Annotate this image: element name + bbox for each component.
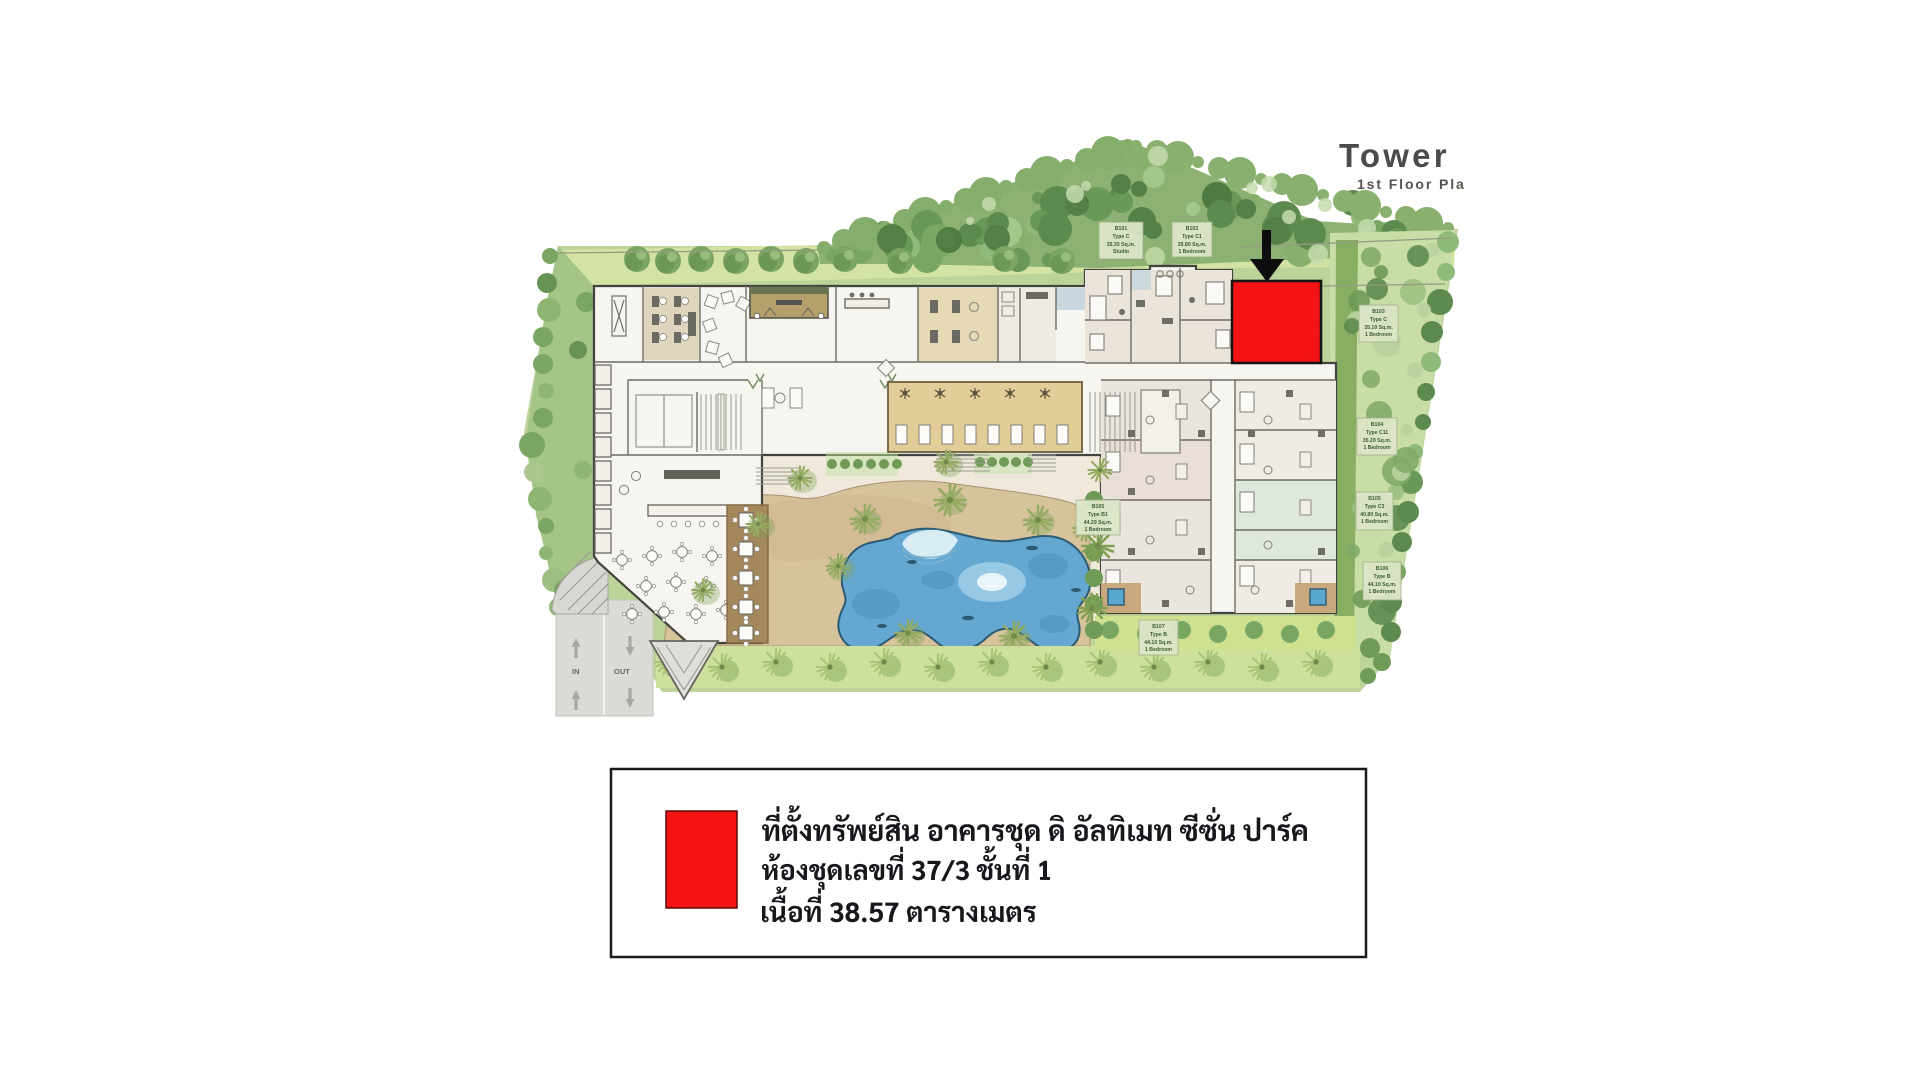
svg-text:44.10 Sq.m.: 44.10 Sq.m. [1368,582,1397,588]
svg-text:B105: B105 [1368,496,1381,502]
svg-text:44.10 Sq.m.: 44.10 Sq.m. [1144,640,1173,646]
svg-text:Type C11: Type C11 [1366,430,1389,436]
svg-text:Type C: Type C [1370,317,1387,323]
svg-text:B101: B101 [1115,226,1128,232]
svg-text:35.35 Sq.m.: 35.35 Sq.m. [1107,242,1136,248]
svg-text:B107: B107 [1152,624,1165,630]
svg-text:1 Bedroom: 1 Bedroom [1145,647,1172,653]
svg-text:IN: IN [572,667,580,676]
svg-text:1st Floor Pla: 1st Floor Pla [1357,176,1466,192]
svg-text:B103: B103 [1372,309,1385,315]
svg-text:44.29 Sq.m.: 44.29 Sq.m. [1084,520,1113,526]
svg-text:Type B1: Type B1 [1088,512,1108,518]
svg-text:B102: B102 [1186,226,1199,232]
svg-text:1 Bedroom: 1 Bedroom [1365,332,1392,338]
svg-text:40.80 Sq.m.: 40.80 Sq.m. [1360,512,1389,518]
svg-text:B105: B105 [1092,504,1105,510]
svg-text:Type C: Type C [1113,234,1130,240]
svg-text:Type B: Type B [1374,574,1391,580]
svg-text:1 Bedroom: 1 Bedroom [1178,249,1205,255]
svg-text:1 Bedroom: 1 Bedroom [1368,589,1395,595]
svg-text:35.10 Sq.m.: 35.10 Sq.m. [1364,325,1393,331]
svg-text:Tower: Tower [1339,137,1450,174]
svg-text:Type C1: Type C1 [1182,234,1202,240]
svg-text:1 Bedroom: 1 Bedroom [1361,519,1388,525]
svg-text:Type B: Type B [1150,632,1167,638]
svg-text:Studio: Studio [1113,249,1129,255]
svg-text:1 Bedroom: 1 Bedroom [1084,527,1111,533]
svg-text:B106: B106 [1376,566,1389,572]
svg-text:35.20 Sq.m.: 35.20 Sq.m. [1363,438,1392,444]
svg-text:OUT: OUT [614,667,630,676]
svg-text:B104: B104 [1371,422,1384,428]
svg-text:35.80 Sq.m.: 35.80 Sq.m. [1178,242,1207,248]
svg-text:1 Bedroom: 1 Bedroom [1363,445,1390,451]
svg-text:Type C3: Type C3 [1365,504,1385,510]
